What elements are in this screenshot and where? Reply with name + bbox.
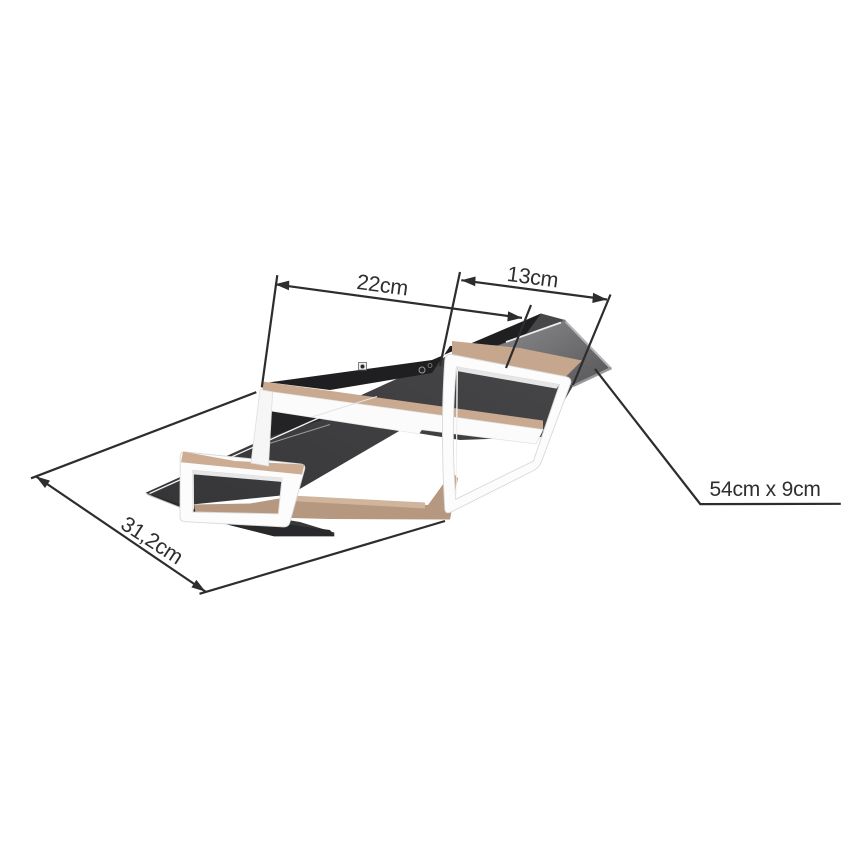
svg-text:31,2cm: 31,2cm <box>117 512 188 570</box>
svg-text:54cm x 9cm: 54cm x 9cm <box>710 478 821 501</box>
